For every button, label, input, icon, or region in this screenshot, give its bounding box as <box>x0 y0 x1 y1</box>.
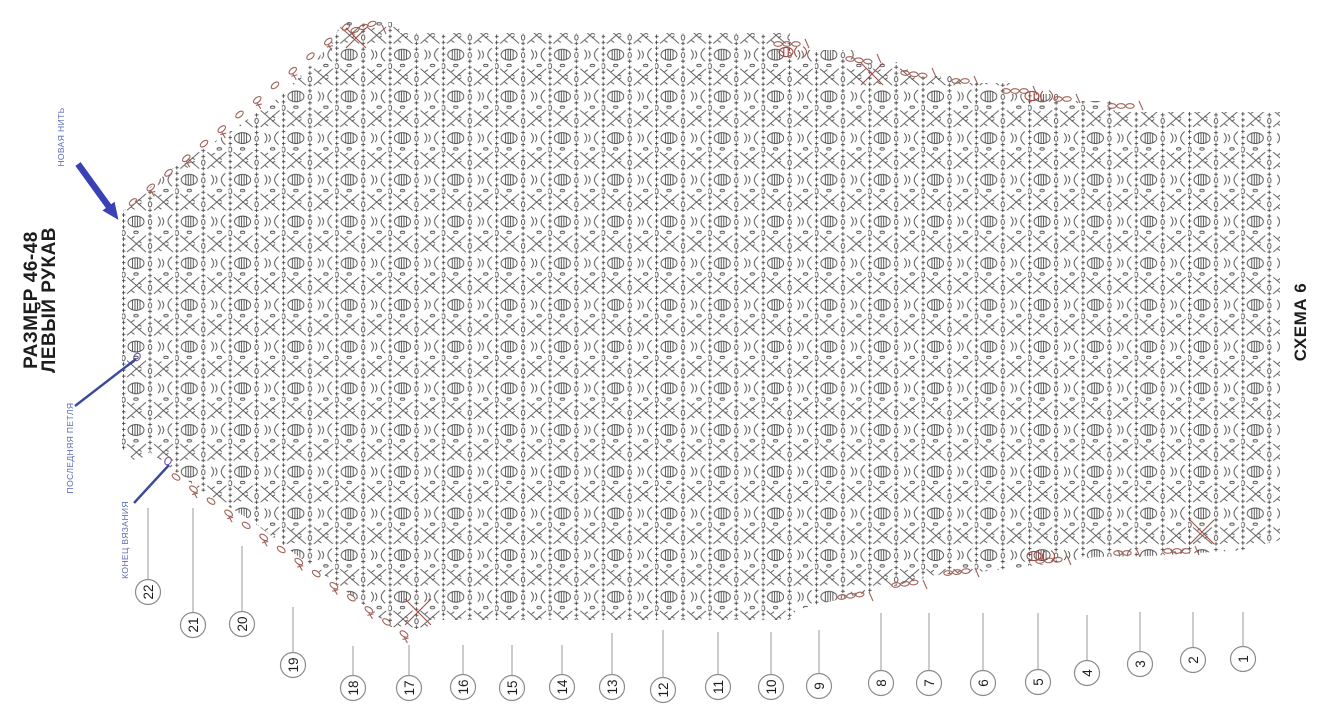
size-title-line2: ЛЕВЫЙ РУКАВ <box>38 227 60 373</box>
new-thread-arrow <box>78 164 112 211</box>
schema-label: СХЕМА 6 <box>1291 283 1310 361</box>
row-marker-number: 7 <box>922 679 937 687</box>
row-marker-18: 18 <box>341 646 366 701</box>
row-marker-10: 10 <box>759 632 784 700</box>
row-marker-16: 16 <box>451 645 476 700</box>
row-marker-15: 15 <box>500 645 525 701</box>
row-marker-14: 14 <box>550 645 575 700</box>
row-marker-number: 19 <box>286 657 301 672</box>
row-marker-6: 6 <box>971 613 996 696</box>
row-marker-number: 11 <box>711 680 726 694</box>
row-marker-number: 21 <box>186 617 201 632</box>
row-marker-number: 12 <box>656 682 671 697</box>
row-marker-number: 9 <box>812 682 827 690</box>
row-marker-number: 18 <box>346 680 361 695</box>
row-marker-number: 15 <box>505 680 520 695</box>
row-marker-7: 7 <box>917 613 942 696</box>
crochet-chart-canvas: 12345678910111213141516171819202122 РАЗМ… <box>0 0 1318 710</box>
row-marker-9: 9 <box>807 630 832 699</box>
row-marker-number: 10 <box>764 679 779 694</box>
row-marker-20: 20 <box>230 546 255 637</box>
row-marker-22: 22 <box>136 508 161 605</box>
row-marker-number: 22 <box>141 584 156 599</box>
row-marker-number: 17 <box>402 680 417 695</box>
end-of-knitting-label: КОНЕЦ ВЯЗАНИЯ <box>120 501 130 579</box>
row-marker-8: 8 <box>869 613 894 696</box>
row-marker-4: 4 <box>1075 615 1100 686</box>
row-marker-number: 3 <box>1133 660 1148 668</box>
row-marker-13: 13 <box>600 633 625 700</box>
sleeve-outline <box>122 22 1280 631</box>
sleeve-chart-body <box>122 22 1280 631</box>
row-marker-number: 1 <box>1236 655 1251 663</box>
row-marker-number: 6 <box>976 679 991 687</box>
row-marker-1: 1 <box>1231 612 1256 672</box>
row-marker-5: 5 <box>1026 613 1051 695</box>
row-marker-number: 4 <box>1080 669 1095 677</box>
row-marker-number: 16 <box>456 679 471 694</box>
new-thread-label: НОВАЯ НИТЬ <box>56 107 66 166</box>
row-marker-21: 21 <box>181 508 206 638</box>
row-marker-17: 17 <box>397 645 422 701</box>
row-marker-number: 8 <box>874 679 889 687</box>
row-marker-number: 14 <box>555 679 570 695</box>
row-marker-number: 20 <box>235 616 250 631</box>
row-marker-11: 11 <box>706 632 731 700</box>
row-marker-number: 2 <box>1186 656 1201 664</box>
row-marker-number: 5 <box>1031 678 1046 686</box>
row-marker-2: 2 <box>1181 612 1206 673</box>
row-marker-19: 19 <box>281 607 306 678</box>
crochet-schema-page: 12345678910111213141516171819202122 РАЗМ… <box>0 0 1318 710</box>
row-marker-3: 3 <box>1128 612 1153 677</box>
row-marker-12: 12 <box>651 630 676 703</box>
last-loop-label: ПОСЛЕДНЯЯ ПЕТЛЯ <box>65 403 75 494</box>
row-marker-number: 13 <box>605 679 620 694</box>
